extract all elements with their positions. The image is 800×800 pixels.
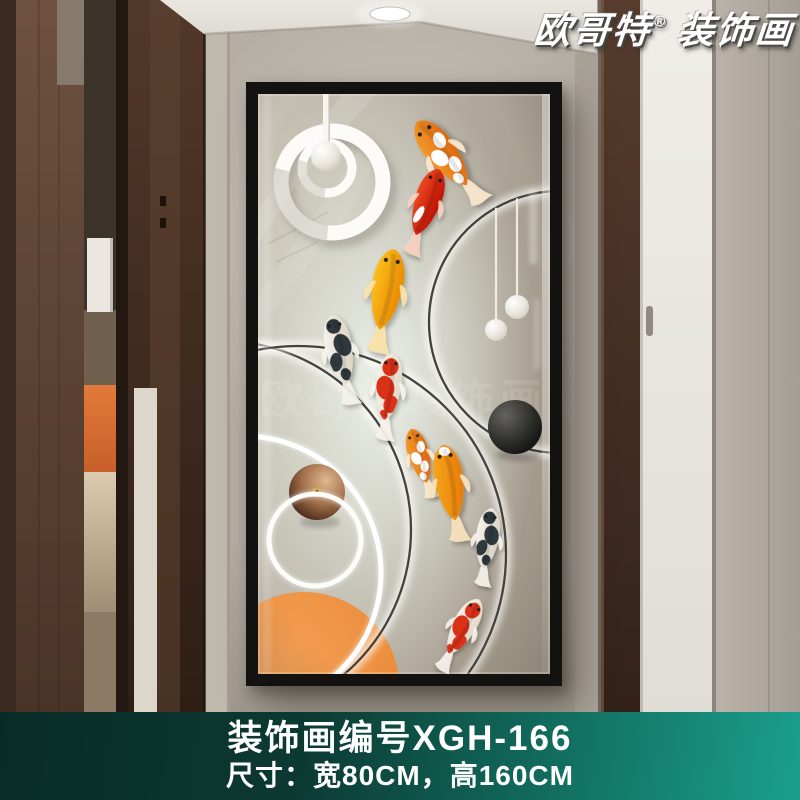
wood-grain-line: [38, 0, 40, 713]
registered-trademark-icon: ®: [653, 14, 667, 29]
right-edge-strip: [575, 0, 601, 713]
recess-mid: [84, 310, 116, 388]
right-wall: [716, 0, 800, 713]
wood-grain-line: [58, 0, 60, 713]
lit-alcove: [84, 472, 116, 612]
post-edge-line: [203, 0, 206, 713]
door-edge-shade: [640, 0, 643, 713]
model-number-text: 装饰画编号XGH-166: [228, 720, 573, 759]
right-wall-line: [768, 0, 770, 713]
cream-sliver: [134, 388, 157, 713]
painting-canvas: 欧哥特装饰画: [258, 94, 550, 674]
frame-highlight: [601, 0, 604, 713]
wall-seam: [712, 0, 716, 713]
product-image: 欧哥特装饰画: [0, 0, 800, 800]
left-wood-panel: [16, 0, 84, 713]
size-text: 尺寸：宽80CM，高160CM: [226, 761, 574, 792]
wall-panel-box: [87, 238, 113, 312]
frame-shadow-line: [598, 0, 601, 713]
dark-slit: [116, 0, 128, 713]
door-handle: [646, 306, 653, 336]
painting-frame: 欧哥特装饰画: [246, 82, 562, 686]
brand-suffix: 装饰画: [675, 12, 795, 49]
info-banner: 装饰画编号XGH-166 尺寸：宽80CM，高160CM: [0, 712, 800, 800]
brand-name: 欧哥特: [532, 12, 652, 49]
orange-furniture-glimpse: [84, 385, 116, 472]
left-wood-edge: [0, 0, 16, 713]
pillar-shade: [227, 0, 230, 713]
white-door: [640, 0, 712, 713]
box-shadow-edge: [110, 238, 114, 312]
door-frame-right: [601, 0, 640, 713]
recess-floor: [84, 612, 116, 713]
door-hinge: [160, 218, 166, 228]
door-hinge: [160, 196, 166, 206]
wall-pillar: [206, 0, 230, 713]
canvas-vignette: [258, 94, 550, 674]
brand-logo: 欧哥特®装饰画: [532, 12, 795, 49]
